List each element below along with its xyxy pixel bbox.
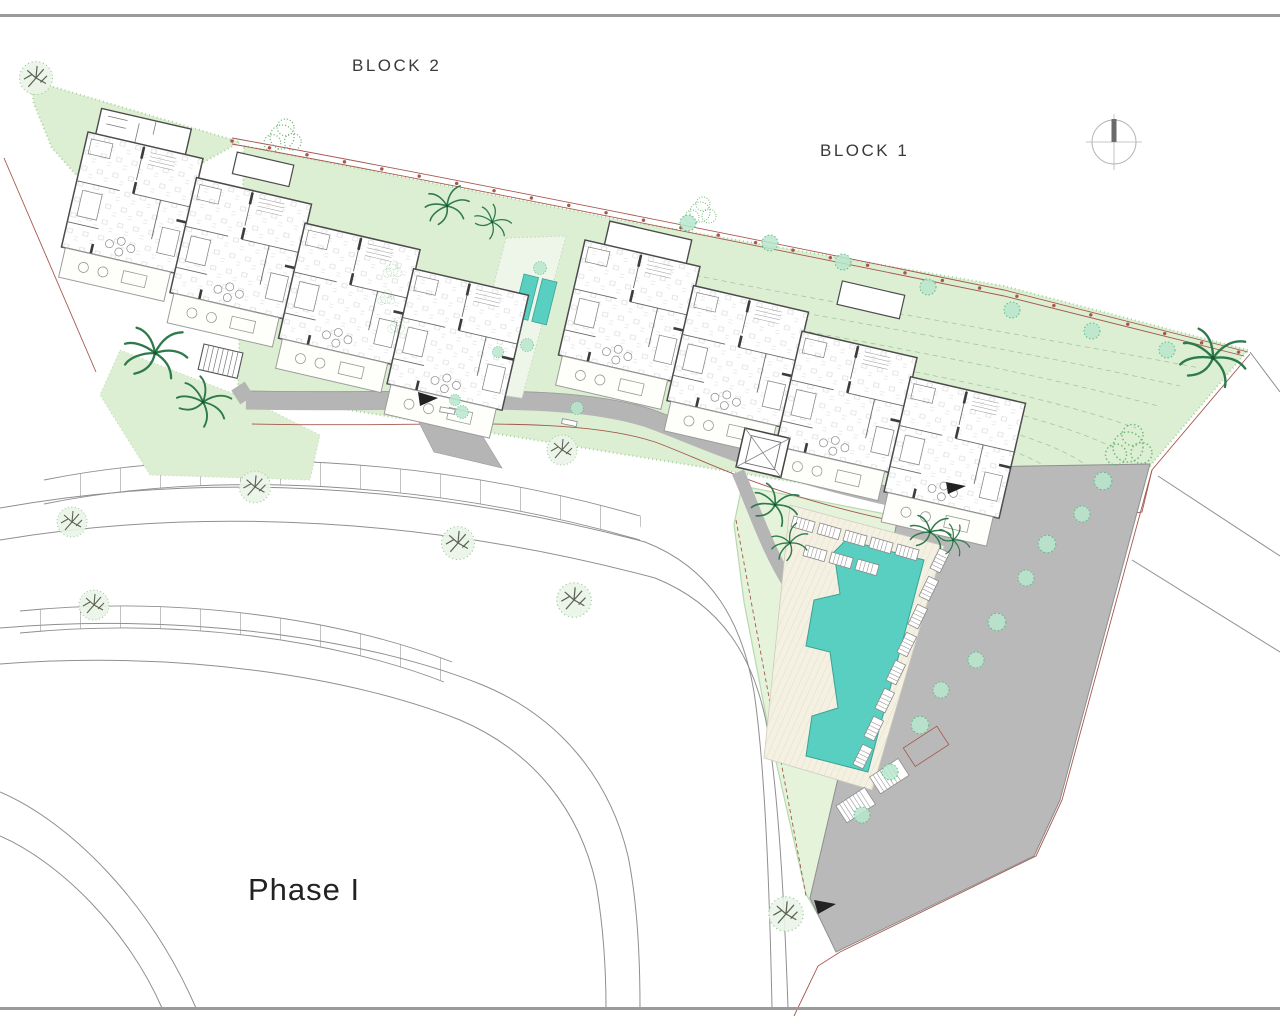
road-a-outer-edge (0, 487, 772, 1008)
block2-label: BLOCK 2 (352, 56, 441, 75)
block1-label: BLOCK 1 (820, 141, 909, 160)
road-east-fork-1 (1250, 352, 1280, 392)
phase-label: Phase I (248, 872, 360, 907)
block2-external-stair (198, 344, 243, 378)
deciduous-tree-icon (769, 897, 804, 932)
deciduous-tree-icon (79, 590, 109, 620)
driveway-start-stub (238, 386, 247, 400)
road-b-outer-edge (0, 623, 640, 1008)
road-east-fork-3 (1132, 560, 1280, 652)
road-c-inner-edge (0, 836, 162, 1008)
road-east-fork-2 (1158, 476, 1280, 556)
road-b-inner-edge (0, 660, 606, 1008)
deciduous-tree-icon (239, 471, 271, 503)
site-plan-canvas: BLOCK 2 BLOCK 1 Phase I (0, 0, 1280, 1024)
road-c-outer-edge (0, 792, 196, 1008)
deciduous-tree-icon (442, 527, 475, 560)
deciduous-tree-icon (557, 583, 592, 618)
north-arrow-icon (1086, 114, 1142, 170)
deciduous-tree-icon (20, 62, 53, 95)
street-parking-bays (20, 461, 640, 682)
deciduous-tree-icon (547, 435, 577, 465)
deciduous-tree-icon (57, 507, 87, 537)
site-plan-drawing: BLOCK 2 BLOCK 1 Phase I (0, 0, 1280, 1024)
